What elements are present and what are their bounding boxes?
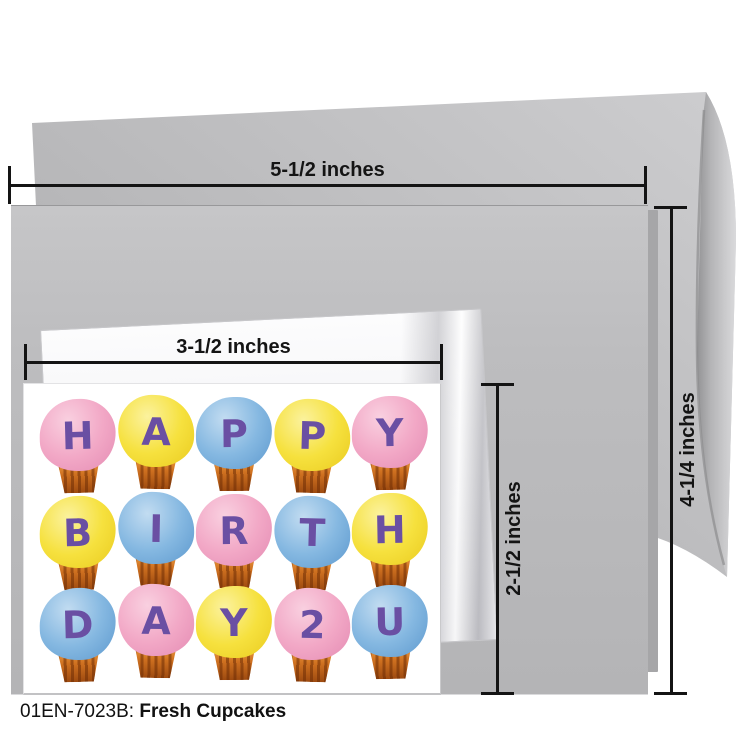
cupcake-letter: D — [39, 601, 116, 649]
cupcake: P — [273, 398, 352, 497]
measure-tick — [644, 166, 647, 204]
cupcake-letter: A — [118, 408, 195, 455]
cupcake: Y — [351, 395, 429, 493]
cupcake-letter: B — [39, 509, 116, 557]
cupcake: Y — [196, 586, 273, 684]
cupcake-letter: U — [351, 598, 428, 645]
cupcake: U — [351, 584, 429, 682]
small-card: HAPPY BIRTH DAY2U — [23, 383, 441, 695]
cupcake: D — [39, 587, 118, 686]
cupcake-letter: H — [351, 506, 428, 553]
cupcake: A — [117, 394, 195, 492]
measure-large-width-line — [8, 184, 647, 187]
cupcake-row-2: BIRTH — [24, 494, 440, 591]
cupcake: I — [117, 491, 195, 589]
cupcake: H — [39, 398, 118, 497]
caption-title: Fresh Cupcakes — [139, 701, 286, 722]
measure-tick — [8, 166, 11, 204]
measure-small-width-label: 3-1/2 inches — [24, 336, 443, 359]
cupcake-letter: Y — [351, 409, 428, 456]
cupcake-letter: I — [118, 505, 195, 552]
measure-large-width-label: 5-1/2 inches — [8, 159, 647, 182]
cupcake-letter: 2 — [274, 601, 351, 649]
measure-large-height-label: 4-1/4 inches — [673, 206, 703, 693]
measure-tick — [24, 344, 27, 380]
cupcake-letter: T — [274, 509, 351, 557]
measure-tick — [440, 344, 443, 380]
cupcake: A — [117, 583, 195, 681]
measure-small-width-line — [24, 361, 443, 364]
product-mockup: HAPPY BIRTH DAY2U 5-1/2 inches 3-1/2 inc… — [0, 0, 738, 738]
caption-code: 01EN-7023B: — [20, 701, 134, 722]
measure-small-height-label: 2-1/2 inches — [499, 383, 529, 693]
caption: 01EN-7023B: Fresh Cupcakes — [20, 701, 286, 723]
cupcake-letter: P — [274, 412, 351, 460]
cupcake: T — [273, 495, 352, 594]
cupcake-letter: H — [39, 412, 116, 460]
cupcake-row-1: HAPPY — [24, 397, 440, 494]
cupcake-letter: R — [196, 508, 272, 555]
cupcake: P — [196, 397, 273, 495]
cupcake: H — [351, 492, 429, 590]
cupcake-letter: P — [196, 411, 272, 458]
cupcake: B — [39, 495, 118, 594]
cupcake-letter: A — [118, 597, 195, 644]
cupcake-row-3: DAY2U — [24, 586, 440, 683]
cupcake-letter: Y — [196, 600, 272, 647]
cupcake: 2 — [273, 587, 352, 686]
cupcake: R — [196, 494, 273, 592]
